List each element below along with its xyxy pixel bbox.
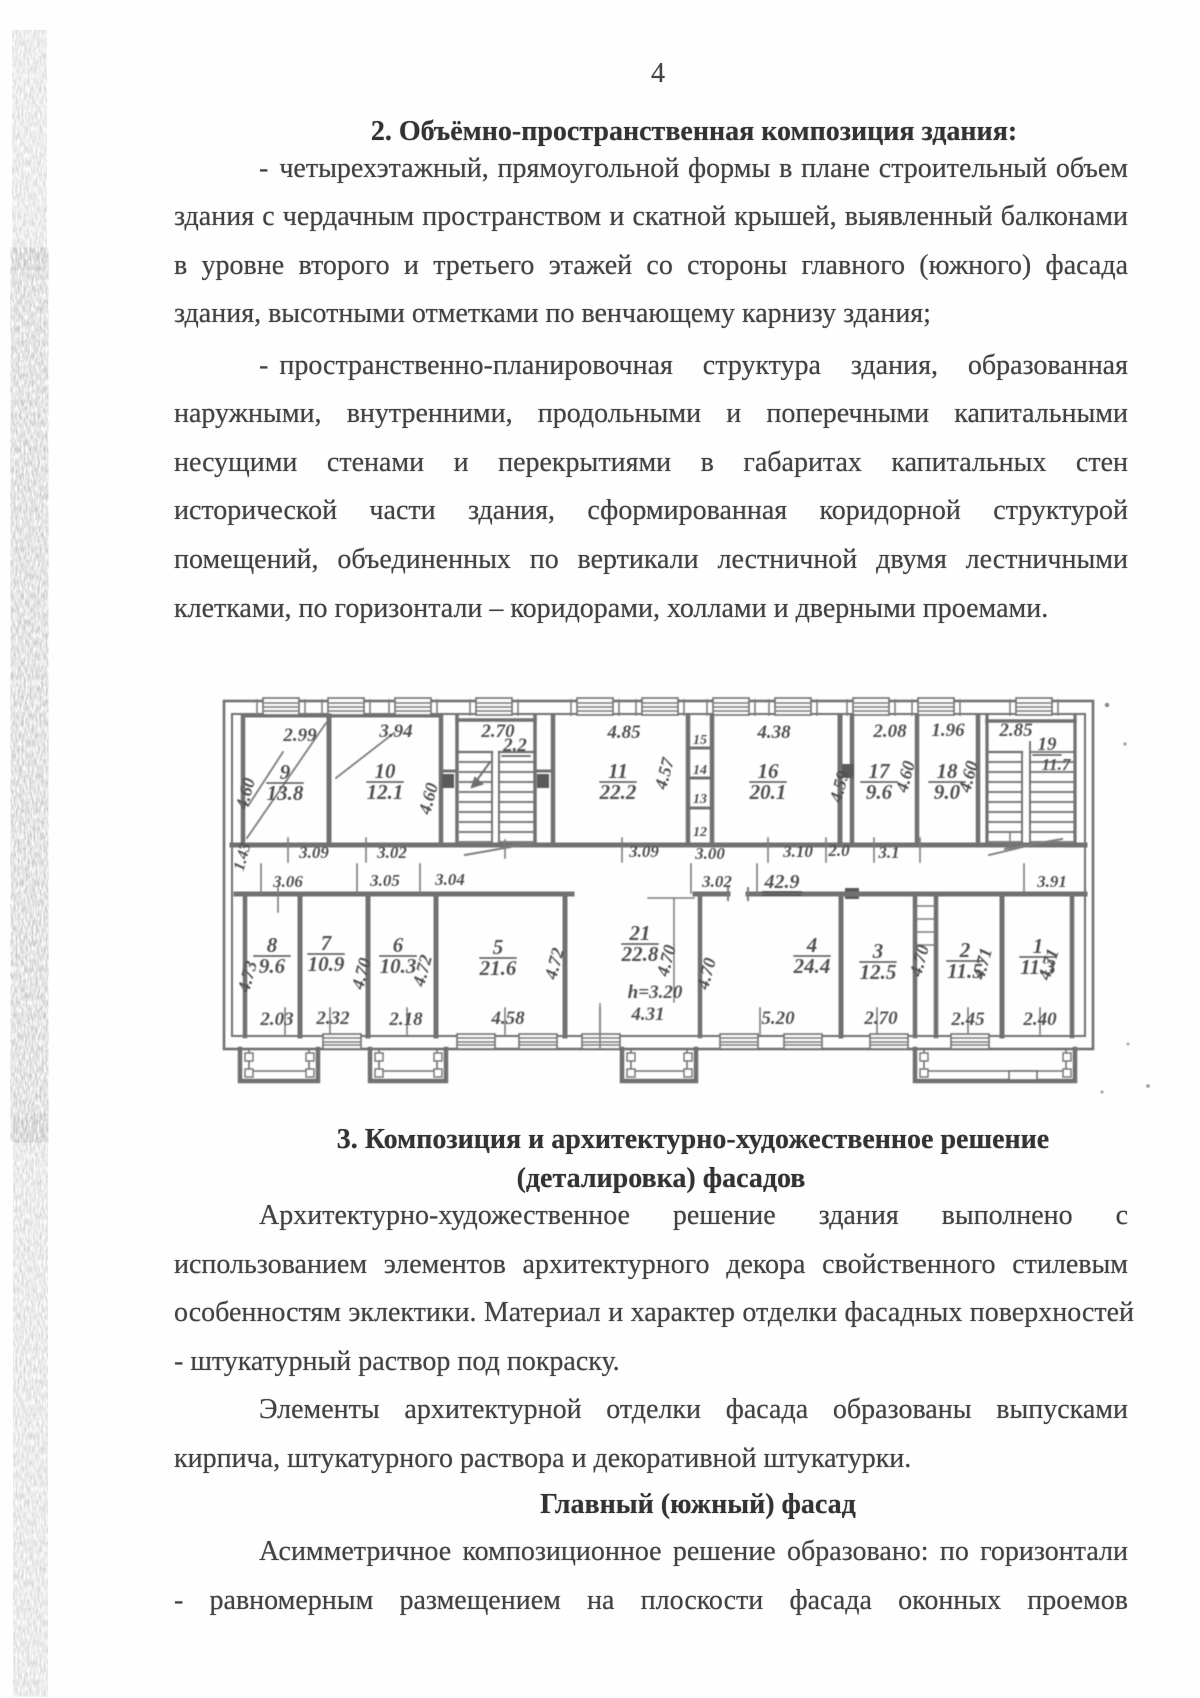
svg-text:2.45: 2.45 (950, 1009, 985, 1030)
svg-text:4.57: 4.57 (650, 755, 678, 793)
svg-text:2.70: 2.70 (863, 1008, 898, 1029)
svg-text:2.08: 2.08 (872, 721, 907, 742)
svg-text:2.03: 2.03 (259, 1009, 293, 1030)
svg-text:3.04: 3.04 (434, 870, 465, 889)
svg-text:2.32: 2.32 (315, 1008, 350, 1029)
svg-text:9.6: 9.6 (259, 954, 286, 978)
svg-text:2.85: 2.85 (998, 720, 1033, 741)
svg-text:2.40: 2.40 (1022, 1009, 1057, 1030)
svg-text:13: 13 (693, 792, 707, 807)
svg-text:12: 12 (693, 825, 707, 840)
svg-text:20.1: 20.1 (749, 780, 787, 804)
svg-text:4.59: 4.59 (825, 769, 853, 806)
svg-text:12.5: 12.5 (860, 960, 897, 984)
svg-text:3.02: 3.02 (701, 872, 732, 891)
svg-text:21.6: 21.6 (479, 956, 517, 980)
svg-text:3.09: 3.09 (298, 843, 329, 862)
svg-text:12.1: 12.1 (367, 780, 404, 804)
svg-text:22.2: 22.2 (599, 780, 637, 804)
svg-text:19: 19 (1038, 734, 1058, 755)
svg-text:4.70: 4.70 (347, 956, 375, 993)
svg-text:3.06: 3.06 (272, 872, 303, 891)
svg-text:4.60: 4.60 (414, 781, 442, 818)
svg-text:4.85: 4.85 (606, 722, 641, 743)
svg-text:2.0: 2.0 (827, 841, 850, 860)
svg-text:3.05: 3.05 (369, 871, 400, 890)
svg-text:3.94: 3.94 (378, 721, 412, 742)
svg-text:3.00: 3.00 (694, 844, 725, 863)
svg-text:4.70: 4.70 (905, 943, 933, 980)
svg-text:2.2: 2.2 (502, 735, 527, 756)
svg-text:2.99: 2.99 (282, 725, 317, 746)
svg-text:2.18: 2.18 (388, 1009, 423, 1030)
svg-text:3.1: 3.1 (877, 843, 899, 862)
svg-text:13.8: 13.8 (267, 781, 304, 805)
svg-text:4.31: 4.31 (630, 1004, 664, 1025)
svg-text:24.4: 24.4 (793, 954, 831, 978)
svg-text:42.9: 42.9 (764, 871, 800, 893)
svg-text:3.91: 3.91 (1036, 872, 1067, 891)
svg-text:4.58: 4.58 (490, 1008, 525, 1029)
svg-text:4.71: 4.71 (968, 946, 996, 983)
svg-text:h=3.20: h=3.20 (628, 982, 683, 1003)
svg-text:22.8: 22.8 (621, 942, 659, 966)
svg-text:4.70: 4.70 (692, 956, 720, 993)
svg-text:4.60: 4.60 (231, 776, 259, 813)
svg-text:14: 14 (693, 763, 707, 778)
svg-text:4.38: 4.38 (756, 722, 791, 743)
svg-text:10.9: 10.9 (308, 952, 345, 976)
svg-text:3.02: 3.02 (376, 843, 407, 862)
svg-text:1.96: 1.96 (931, 720, 965, 741)
svg-text:3.09: 3.09 (628, 842, 659, 861)
svg-text:4.73: 4.73 (233, 959, 261, 996)
svg-text:9.6: 9.6 (866, 780, 893, 804)
svg-text:15: 15 (693, 733, 707, 748)
svg-text:11.7: 11.7 (1042, 755, 1072, 774)
svg-text:5.20: 5.20 (761, 1008, 795, 1029)
svg-text:3.10: 3.10 (782, 842, 813, 861)
